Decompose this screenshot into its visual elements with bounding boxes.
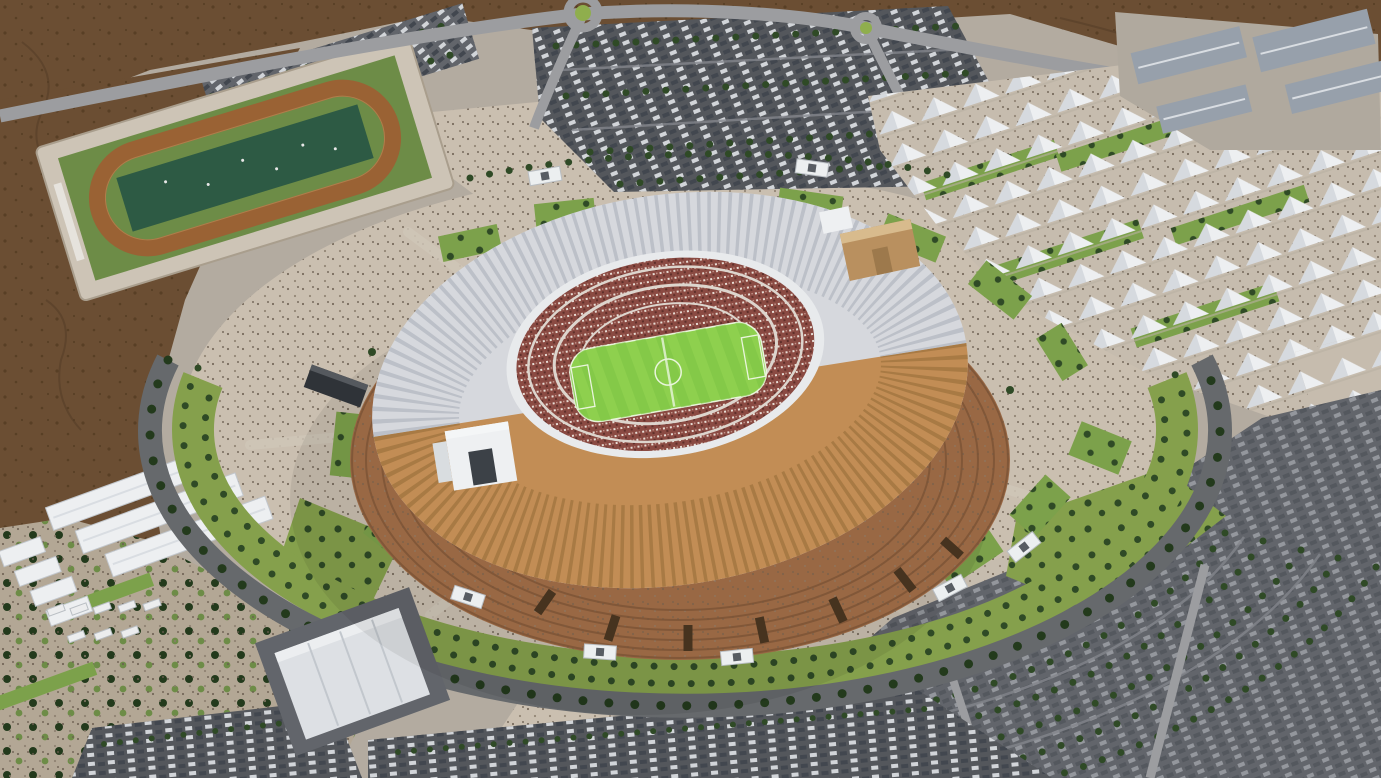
tree-dot	[1006, 386, 1014, 394]
gate-opening	[733, 653, 742, 662]
stadium-aerial-render	[0, 0, 1381, 778]
scene-svg	[0, 0, 1381, 778]
roundabout-green	[860, 22, 872, 34]
gate-opening	[540, 171, 549, 180]
tree-dot	[368, 348, 376, 356]
roundabout-green	[575, 5, 591, 21]
gate-opening	[807, 163, 816, 172]
terrace-stair	[684, 625, 693, 651]
gate-opening	[596, 648, 605, 657]
